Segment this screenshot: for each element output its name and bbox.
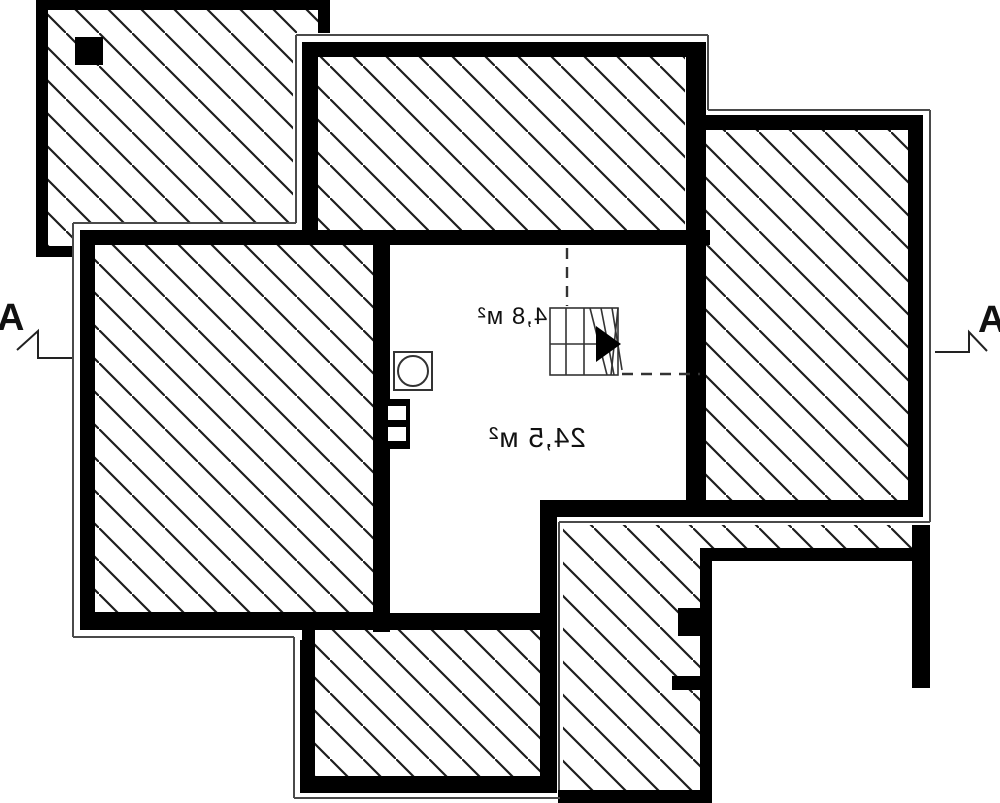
room-area-label-stairs: 4,8 м² [477,303,548,330]
wall-segment [700,548,912,561]
chimney-flue-icon [678,608,702,636]
chimney-flue-icon [373,399,410,449]
hatched-area [706,130,908,501]
wall-segment [302,42,318,245]
wall-segment [80,230,710,245]
wall-segment [540,500,557,793]
vent-circle-icon [394,352,432,390]
wall-segment [912,525,930,688]
hatched-area [315,630,540,776]
hatched-area [563,525,912,790]
wall-segment [80,230,95,630]
floor-plan-drawing: 24,5 м² 4,8 м² A A [0,0,1000,803]
wall-segment [908,117,923,517]
section-letter-left: A [0,297,24,339]
room-area-label-main: 24,5 м² [488,422,586,453]
wall-pier [672,676,702,690]
hatched-area [95,245,373,612]
block-right [690,115,923,517]
wall-segment [686,42,706,517]
wall-segment [540,500,923,517]
wall-segment [690,115,923,130]
section-letter-right: A [978,299,1000,341]
block-top-left [36,0,330,257]
hatched-area [318,57,685,230]
section-cut-mark [17,331,72,358]
wall-segment [300,613,315,790]
section-marker-left: A [0,297,72,358]
wall-segment [302,42,700,57]
wall-segment [558,790,712,803]
wall-segment [700,548,712,803]
chimney-flue-icon [75,37,103,65]
wall-segment [300,776,555,793]
dashed-reference-lines [567,248,700,374]
block-bottom-right [540,500,930,803]
wall-segment [80,612,390,630]
floor-plan-page: 24,5 м² 4,8 м² A A [0,0,1000,803]
section-marker-right: A [935,299,1000,352]
